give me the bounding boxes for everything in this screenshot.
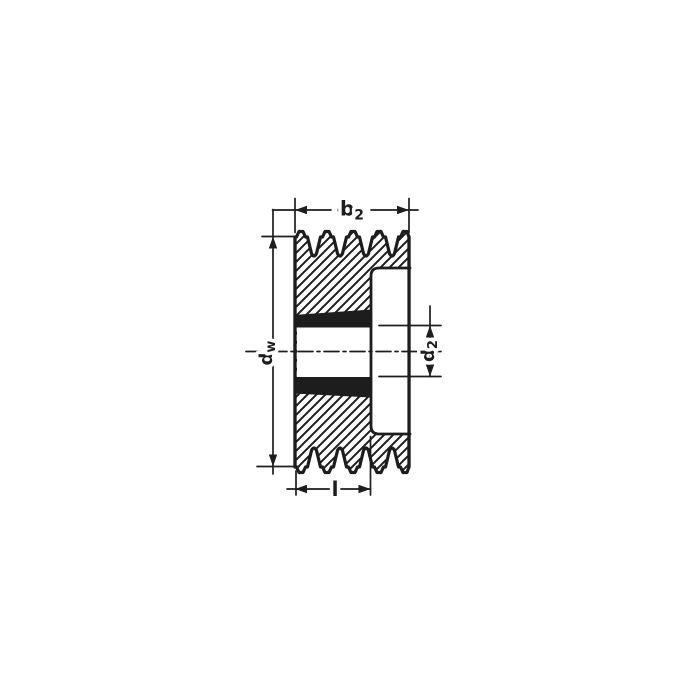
pulley-technical-drawing: b2 dw d2 l [0, 0, 700, 700]
l-label: l [332, 477, 339, 501]
b2-dimension: b2 [273, 197, 419, 233]
dw-dimension: dw [256, 210, 299, 475]
b2-arrow-left [295, 206, 307, 214]
dw-arrow-bottom [269, 455, 277, 467]
b2-label: b2 [340, 197, 364, 224]
l-arrow-right [359, 485, 371, 493]
b2-arrow-right [397, 206, 409, 214]
d2-label: d2 [418, 340, 441, 362]
d2-arrow-top [426, 326, 434, 338]
dw-arrow-top [269, 237, 277, 249]
drawing-canvas: b2 dw d2 l [0, 0, 700, 700]
dw-label: dw [256, 341, 279, 366]
d2-arrow-bottom [426, 365, 434, 377]
